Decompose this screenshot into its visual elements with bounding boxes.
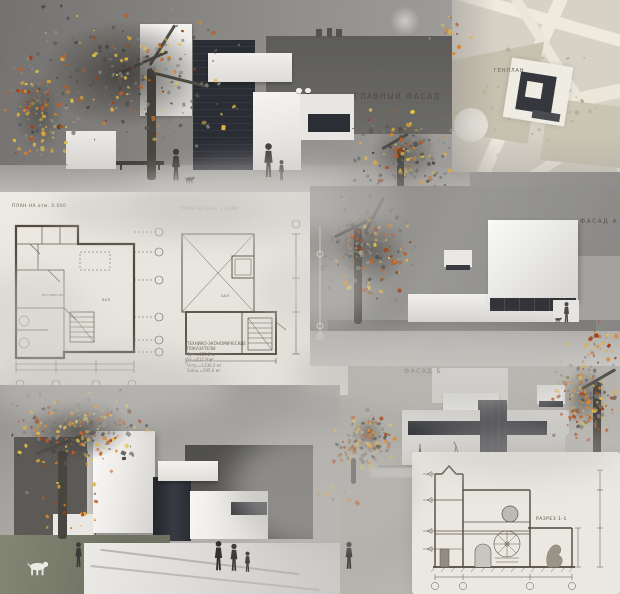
bench-leg bbox=[120, 165, 122, 170]
leaf bbox=[365, 441, 369, 444]
leaf bbox=[389, 223, 393, 228]
leaf bbox=[593, 369, 596, 373]
leaf bbox=[583, 389, 587, 393]
leaf bbox=[77, 414, 82, 419]
leaf bbox=[602, 390, 606, 394]
leaf bbox=[397, 289, 402, 293]
leaf bbox=[65, 126, 68, 129]
leaf bbox=[85, 105, 90, 110]
leaf bbox=[362, 287, 367, 292]
leaf bbox=[68, 430, 70, 432]
leaf bbox=[573, 408, 577, 413]
leaf bbox=[126, 71, 130, 75]
leaf bbox=[588, 368, 590, 370]
leaf bbox=[612, 395, 618, 401]
leaf bbox=[410, 157, 412, 159]
section-label: РАЗРЕЗ 1-1 bbox=[536, 517, 567, 522]
leaf bbox=[405, 144, 407, 146]
leaf bbox=[35, 51, 40, 56]
leaf bbox=[100, 416, 104, 419]
leaf bbox=[374, 457, 378, 461]
leaf bbox=[585, 399, 591, 405]
leaf bbox=[579, 379, 584, 384]
leaf bbox=[138, 419, 142, 423]
leaf bbox=[405, 258, 409, 262]
leaf bbox=[40, 105, 45, 110]
leaf bbox=[41, 407, 46, 411]
leaf bbox=[41, 112, 44, 115]
tree-branch bbox=[381, 133, 408, 150]
leaf bbox=[587, 418, 592, 423]
leaf bbox=[355, 431, 358, 435]
leaf bbox=[338, 227, 341, 230]
site-plan: ГЕНПЛАН bbox=[452, 0, 620, 172]
leaf bbox=[373, 415, 375, 417]
leaf bbox=[101, 121, 105, 125]
leaf bbox=[378, 226, 381, 229]
leaf bbox=[69, 74, 73, 78]
leaf bbox=[41, 107, 44, 110]
leaf bbox=[72, 423, 77, 428]
leaf bbox=[414, 160, 418, 164]
leaf bbox=[366, 280, 370, 284]
leaf bbox=[58, 124, 63, 129]
leaf bbox=[111, 65, 114, 67]
leaf bbox=[367, 285, 371, 289]
leaf bbox=[37, 426, 39, 428]
leaf bbox=[85, 413, 87, 415]
leaf bbox=[116, 97, 120, 101]
leaf bbox=[123, 13, 129, 18]
leaf bbox=[364, 452, 368, 456]
leaf bbox=[569, 397, 572, 400]
leaf bbox=[126, 74, 130, 78]
leaf bbox=[20, 72, 23, 74]
leaf bbox=[33, 415, 38, 419]
leaf bbox=[374, 232, 377, 235]
leaf bbox=[406, 150, 409, 153]
leaf bbox=[31, 67, 34, 70]
leaf bbox=[111, 45, 114, 48]
leaf bbox=[337, 228, 340, 231]
leaf bbox=[585, 378, 589, 382]
leaf bbox=[388, 209, 392, 213]
leaf bbox=[66, 89, 72, 94]
leaf bbox=[394, 298, 400, 303]
leaf bbox=[119, 80, 122, 84]
leaf bbox=[125, 403, 129, 407]
leaf bbox=[585, 400, 588, 402]
leaf bbox=[40, 127, 44, 131]
leaf bbox=[15, 152, 17, 154]
dog-silhouette bbox=[554, 317, 562, 323]
leaf bbox=[45, 90, 49, 94]
leaf bbox=[121, 64, 125, 68]
leaf bbox=[413, 157, 417, 161]
leaf bbox=[427, 139, 429, 141]
leaf bbox=[407, 213, 409, 215]
leaf bbox=[106, 412, 111, 416]
leaf bbox=[53, 74, 56, 77]
leaf bbox=[36, 94, 41, 99]
leaf bbox=[353, 431, 356, 434]
leaf bbox=[13, 139, 16, 142]
leaf bbox=[55, 400, 60, 404]
leaf bbox=[66, 108, 69, 111]
leaf bbox=[575, 419, 577, 420]
leaf bbox=[23, 431, 27, 434]
leaf bbox=[124, 57, 129, 61]
leaf bbox=[39, 124, 42, 127]
leaf bbox=[105, 120, 108, 123]
leaf bbox=[86, 421, 89, 424]
leaf bbox=[412, 250, 414, 252]
leaf bbox=[413, 245, 417, 249]
leaf bbox=[38, 99, 42, 103]
leaf bbox=[91, 120, 96, 125]
child-silhouette bbox=[277, 157, 286, 184]
bird bbox=[305, 88, 311, 93]
leaf bbox=[62, 124, 66, 129]
tree-branch bbox=[364, 197, 385, 233]
leaf bbox=[107, 409, 110, 412]
leaf bbox=[354, 435, 356, 437]
leaf bbox=[367, 194, 372, 199]
leaf bbox=[116, 95, 120, 99]
leaf bbox=[8, 109, 10, 111]
leaf bbox=[411, 264, 413, 266]
leaf bbox=[382, 431, 385, 433]
leaf bbox=[385, 448, 390, 452]
leaf bbox=[35, 112, 37, 115]
tech-row: Sобщ.=295.0 м² bbox=[187, 368, 246, 373]
leaf bbox=[64, 69, 69, 74]
leaf bbox=[422, 138, 427, 143]
leaf bbox=[343, 280, 347, 285]
leaf bbox=[419, 141, 424, 146]
leaf bbox=[367, 450, 369, 452]
leaf bbox=[349, 440, 352, 443]
leaf bbox=[391, 261, 396, 265]
leaf bbox=[42, 82, 44, 84]
leaf bbox=[127, 36, 130, 38]
leaf bbox=[30, 426, 33, 429]
leaf bbox=[34, 80, 37, 83]
leaf bbox=[116, 407, 120, 411]
leaf bbox=[587, 401, 589, 403]
leaf bbox=[45, 421, 47, 423]
leaf bbox=[25, 112, 30, 116]
leaf bbox=[211, 31, 216, 35]
leaf bbox=[579, 415, 583, 418]
leaf bbox=[579, 401, 583, 405]
leaf bbox=[37, 417, 40, 420]
leaf bbox=[30, 27, 35, 31]
leaf bbox=[560, 374, 563, 377]
leaf bbox=[337, 263, 340, 266]
leaf bbox=[48, 430, 52, 434]
leaf bbox=[23, 151, 28, 156]
leaf bbox=[346, 434, 348, 436]
leaf bbox=[85, 108, 88, 111]
leaf bbox=[20, 134, 22, 136]
leaf bbox=[569, 394, 571, 396]
leaf bbox=[372, 435, 374, 437]
room-label-vestibule: ВЕСТИБЮЛЬ bbox=[42, 293, 64, 297]
tree-trunk bbox=[58, 451, 67, 539]
leaf bbox=[45, 104, 47, 106]
leaf bbox=[3, 130, 5, 132]
leaf bbox=[392, 436, 397, 442]
leaf bbox=[425, 137, 429, 141]
leaf bbox=[7, 62, 9, 64]
leaf bbox=[342, 273, 345, 276]
leaf bbox=[378, 211, 380, 213]
leaf bbox=[40, 102, 42, 104]
leaf bbox=[31, 131, 34, 134]
leaf bbox=[119, 423, 121, 426]
tech-indicators-block: ТЕХНИКО-ЭКОНОМИЧЕСКИЕ ПОКАЗАТЕЛИ: Sуч.=4… bbox=[187, 341, 246, 373]
leaf bbox=[119, 389, 122, 392]
leaf bbox=[398, 260, 403, 264]
leaf bbox=[379, 257, 382, 260]
leaf bbox=[35, 417, 37, 419]
leaf bbox=[111, 100, 112, 102]
leaf bbox=[571, 406, 574, 409]
facade-b-dark-band bbox=[408, 421, 480, 435]
leaf bbox=[34, 105, 36, 107]
leaf bbox=[579, 384, 581, 386]
leaf bbox=[344, 492, 346, 494]
leaf bbox=[576, 366, 580, 371]
child-silhouette bbox=[243, 548, 252, 576]
leaf bbox=[582, 361, 584, 363]
leaf bbox=[83, 109, 88, 114]
leaf bbox=[404, 157, 406, 159]
leaf bbox=[27, 91, 30, 95]
leaf bbox=[597, 362, 599, 364]
leaf bbox=[187, 7, 188, 9]
leaf bbox=[363, 289, 367, 292]
leaf bbox=[77, 415, 79, 417]
leaf bbox=[352, 216, 356, 221]
leaf bbox=[372, 252, 373, 254]
leaf bbox=[133, 71, 135, 73]
leaf bbox=[29, 124, 35, 129]
leaf bbox=[412, 134, 415, 137]
leaf bbox=[384, 439, 389, 444]
leaf bbox=[33, 142, 37, 147]
leaf bbox=[586, 437, 591, 442]
leaf bbox=[409, 240, 412, 243]
leaf bbox=[606, 394, 608, 396]
leaf bbox=[115, 422, 118, 425]
leaf bbox=[397, 250, 400, 253]
leaf bbox=[375, 231, 377, 233]
leaf bbox=[405, 142, 408, 144]
leaf bbox=[165, 134, 168, 138]
presentation-board: ГЛАВНЫЙ ФАСАД ГЕНПЛАН ПЛАН НА отм. 0.000 bbox=[0, 0, 620, 594]
leaf bbox=[348, 439, 351, 443]
moon-glow bbox=[390, 6, 420, 36]
leaf bbox=[50, 130, 52, 132]
leaf bbox=[373, 228, 377, 232]
leaf bbox=[139, 127, 142, 130]
leaf bbox=[40, 131, 45, 136]
leaf bbox=[114, 106, 118, 109]
leaf bbox=[586, 406, 589, 408]
leaf bbox=[129, 100, 132, 103]
leaf bbox=[570, 381, 573, 383]
leaf bbox=[22, 419, 24, 422]
leaf bbox=[368, 245, 371, 249]
leaf bbox=[362, 273, 365, 276]
leaf bbox=[126, 16, 129, 19]
leaf bbox=[128, 92, 132, 95]
leaf bbox=[118, 78, 123, 82]
leaf bbox=[612, 412, 614, 414]
leaf bbox=[27, 106, 31, 109]
house-right-volume bbox=[190, 491, 268, 539]
leaf bbox=[30, 82, 35, 87]
leaf bbox=[385, 239, 387, 242]
leaf bbox=[108, 33, 110, 35]
tree-trunk bbox=[351, 458, 356, 484]
leaf bbox=[562, 380, 565, 383]
leaf bbox=[99, 423, 101, 426]
leaf bbox=[94, 51, 99, 55]
leaf bbox=[72, 411, 75, 413]
leaf bbox=[367, 429, 372, 434]
leaf bbox=[70, 98, 74, 103]
leaf bbox=[45, 66, 47, 68]
leaf bbox=[582, 410, 585, 412]
leaf bbox=[125, 24, 127, 26]
leaf bbox=[584, 396, 586, 399]
leaf bbox=[344, 253, 347, 256]
leaf bbox=[349, 196, 354, 201]
white-beam bbox=[208, 53, 292, 82]
tree-trunk bbox=[354, 228, 362, 324]
leaf bbox=[393, 259, 396, 262]
leaf bbox=[368, 437, 372, 441]
leaf bbox=[99, 45, 102, 49]
leaf bbox=[366, 281, 369, 284]
leaf bbox=[122, 49, 126, 52]
leaf bbox=[372, 152, 374, 154]
leaf bbox=[29, 137, 33, 141]
leaf bbox=[367, 232, 369, 234]
leaf bbox=[41, 405, 42, 407]
leaf bbox=[80, 95, 83, 99]
leaf bbox=[601, 412, 605, 417]
leaf bbox=[126, 427, 128, 430]
leaf bbox=[334, 212, 336, 214]
leaf bbox=[391, 234, 394, 238]
leaf bbox=[362, 422, 365, 424]
leaf bbox=[412, 152, 415, 155]
leaf bbox=[368, 427, 371, 429]
leaf bbox=[40, 79, 44, 83]
leaf bbox=[70, 425, 72, 427]
leaf bbox=[118, 86, 122, 90]
leaf bbox=[357, 156, 360, 160]
leaf bbox=[125, 102, 129, 107]
leaf bbox=[29, 56, 32, 60]
leaf bbox=[19, 143, 21, 145]
leaf bbox=[555, 371, 557, 374]
leaf bbox=[76, 116, 81, 120]
leaf bbox=[34, 429, 37, 432]
person-silhouette bbox=[343, 537, 355, 574]
leaf bbox=[367, 249, 372, 253]
leaf bbox=[375, 254, 378, 257]
leaf bbox=[347, 245, 350, 248]
leaf bbox=[409, 152, 413, 156]
leaf bbox=[361, 486, 365, 490]
leaf bbox=[44, 424, 48, 427]
leaf bbox=[354, 500, 360, 506]
leaf bbox=[126, 85, 130, 89]
leaf bbox=[86, 397, 91, 403]
leaf bbox=[350, 234, 353, 238]
leaf bbox=[124, 86, 130, 91]
leaf bbox=[402, 251, 407, 256]
leaf bbox=[30, 410, 34, 414]
leaf bbox=[370, 257, 373, 260]
leaf bbox=[9, 89, 13, 92]
leaf bbox=[384, 433, 388, 437]
leaf bbox=[29, 149, 32, 152]
leaf bbox=[407, 151, 409, 152]
leaf bbox=[352, 449, 357, 455]
leaf bbox=[89, 36, 92, 40]
leaf bbox=[581, 398, 585, 402]
leaf bbox=[420, 152, 425, 156]
leaf bbox=[51, 136, 54, 138]
leaf bbox=[370, 422, 374, 426]
leaf bbox=[42, 430, 44, 433]
leaf bbox=[108, 414, 112, 418]
leaf bbox=[427, 151, 429, 154]
leaf bbox=[613, 356, 617, 360]
leaf bbox=[582, 368, 584, 370]
leaf bbox=[201, 17, 205, 21]
leaf bbox=[366, 242, 369, 246]
leaf bbox=[335, 259, 338, 263]
leaf bbox=[40, 5, 45, 10]
leaf bbox=[331, 278, 333, 280]
leaf bbox=[121, 421, 125, 425]
leaf bbox=[347, 446, 351, 451]
tree-trunk bbox=[147, 68, 156, 180]
leaf bbox=[76, 98, 81, 103]
leaf bbox=[75, 79, 79, 84]
leaf bbox=[54, 30, 57, 34]
leaf bbox=[376, 298, 378, 300]
leaf bbox=[373, 432, 375, 434]
leaf bbox=[63, 403, 66, 406]
leaf bbox=[413, 145, 418, 150]
leaf bbox=[137, 93, 139, 95]
leaf bbox=[62, 422, 67, 427]
leaf bbox=[349, 285, 353, 289]
leaf bbox=[120, 58, 124, 62]
leaf bbox=[410, 141, 415, 146]
leaf bbox=[382, 239, 386, 242]
leaf bbox=[53, 401, 57, 405]
leaf bbox=[366, 444, 369, 447]
